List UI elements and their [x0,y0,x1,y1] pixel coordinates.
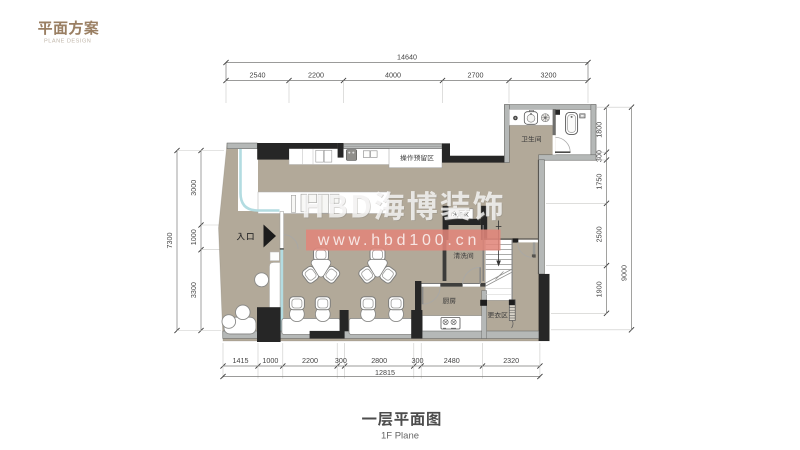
svg-text:1415: 1415 [233,356,249,365]
svg-text:2500: 2500 [595,226,604,242]
svg-text:1750: 1750 [595,174,604,190]
svg-text:2800: 2800 [371,356,387,365]
svg-text:300: 300 [335,356,347,365]
svg-text:2480: 2480 [444,356,460,365]
svg-text:1900: 1900 [595,281,604,297]
svg-text:1000: 1000 [189,229,198,245]
svg-text:2200: 2200 [302,356,318,365]
svg-text:3300: 3300 [189,282,198,298]
svg-text:PLANE DESIGN: PLANE DESIGN [44,39,91,45]
svg-text:9000: 9000 [620,265,629,281]
svg-text:3200: 3200 [541,71,557,80]
svg-text:4000: 4000 [385,71,401,80]
svg-text:7300: 7300 [165,233,174,249]
svg-text:1000: 1000 [262,356,278,365]
svg-text:1F Plane: 1F Plane [381,431,419,442]
svg-text:2700: 2700 [468,71,484,80]
svg-text:12815: 12815 [375,368,395,377]
svg-text:300: 300 [412,356,424,365]
svg-text:www.hbd100.cn: www.hbd100.cn [317,232,480,249]
svg-text:2200: 2200 [308,71,324,80]
svg-text:2320: 2320 [503,356,519,365]
svg-text:14640: 14640 [397,53,417,62]
svg-text:3000: 3000 [189,180,198,196]
svg-text:2540: 2540 [250,71,266,80]
